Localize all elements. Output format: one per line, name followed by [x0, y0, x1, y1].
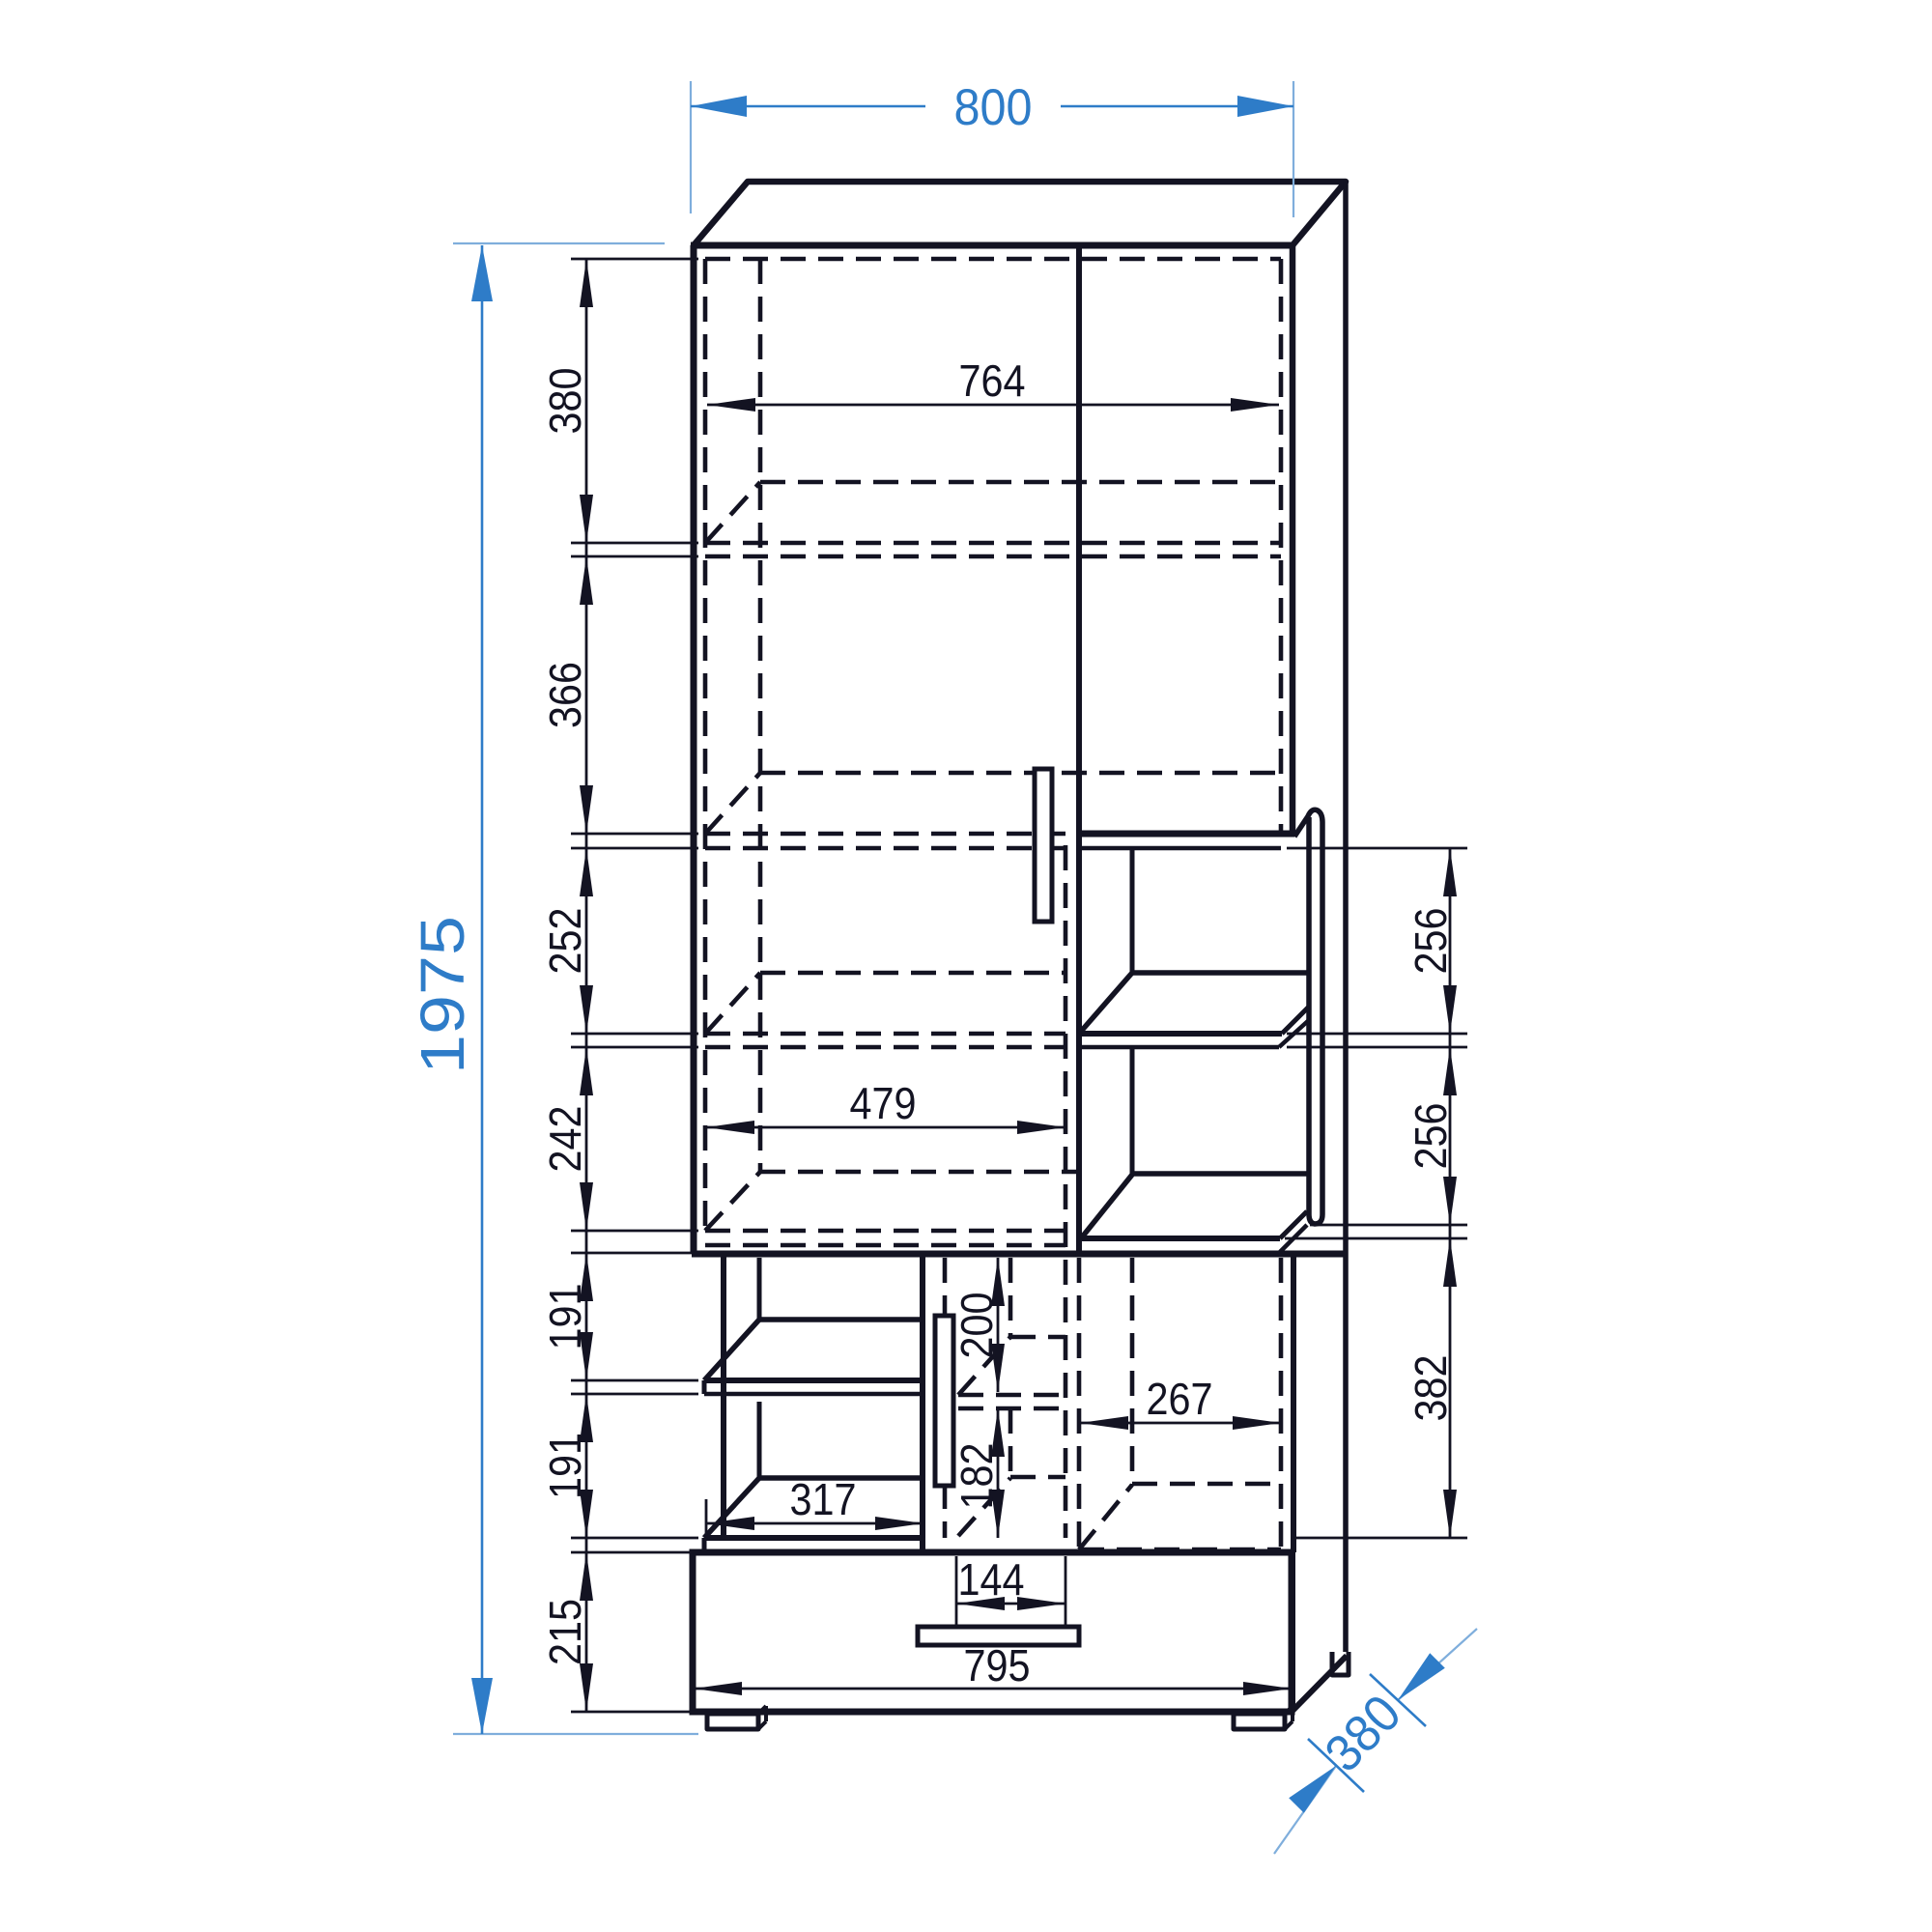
- svg-text:252: 252: [540, 908, 590, 975]
- svg-text:191: 191: [540, 1284, 590, 1350]
- svg-text:317: 317: [790, 1474, 857, 1524]
- svg-text:479: 479: [850, 1078, 917, 1128]
- svg-text:795: 795: [964, 1640, 1031, 1690]
- svg-text:267: 267: [1147, 1374, 1213, 1424]
- svg-text:382: 382: [1406, 1355, 1456, 1422]
- svg-text:366: 366: [540, 662, 590, 728]
- svg-text:1975: 1975: [408, 916, 477, 1074]
- svg-text:144: 144: [958, 1554, 1025, 1605]
- svg-text:256: 256: [1406, 1103, 1456, 1170]
- svg-text:256: 256: [1406, 908, 1456, 975]
- svg-text:200: 200: [952, 1293, 1002, 1359]
- svg-text:800: 800: [954, 79, 1033, 136]
- svg-text:215: 215: [540, 1599, 590, 1665]
- svg-text:182: 182: [952, 1443, 1002, 1510]
- svg-text:764: 764: [959, 355, 1026, 406]
- svg-text:191: 191: [540, 1433, 590, 1499]
- svg-text:380: 380: [540, 368, 590, 435]
- svg-text:242: 242: [540, 1106, 590, 1173]
